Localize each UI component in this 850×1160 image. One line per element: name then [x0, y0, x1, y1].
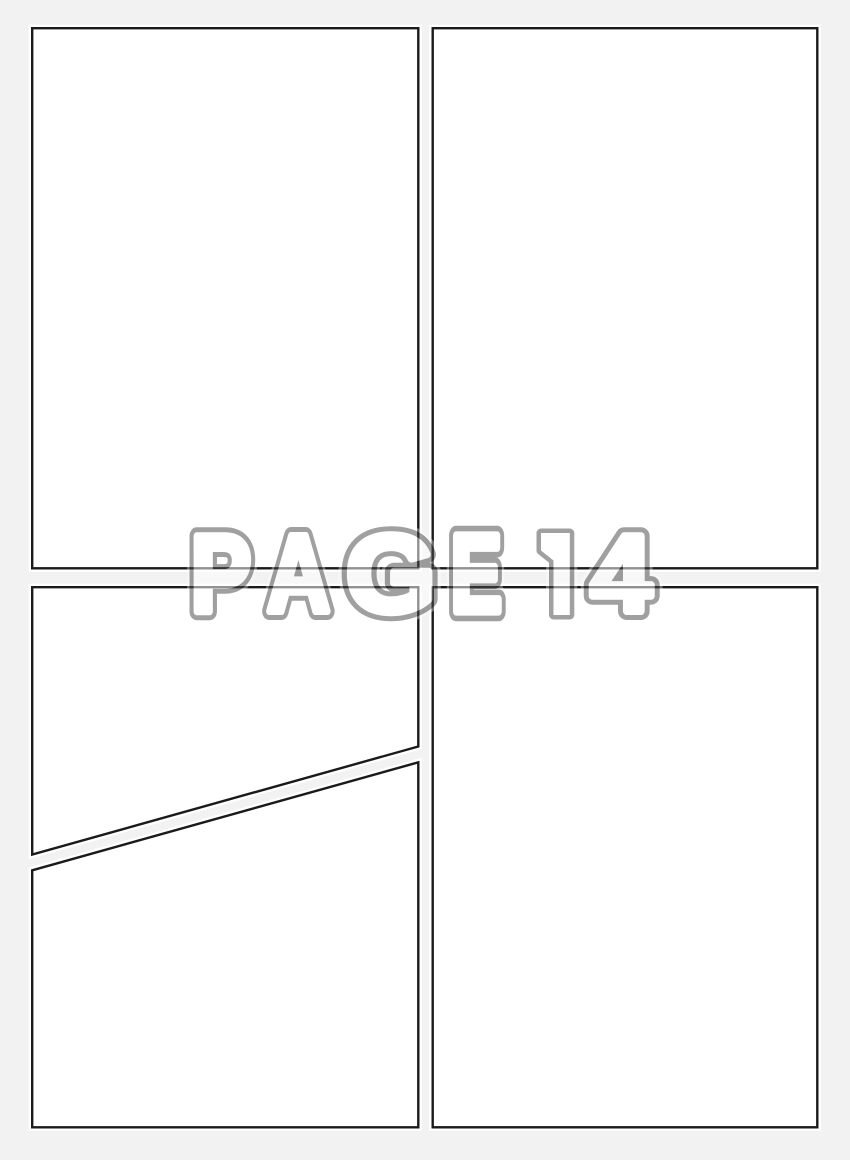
svg-text:A: A [267, 513, 330, 636]
svg-text:4: 4 [591, 513, 652, 635]
svg-text:G: G [346, 512, 436, 635]
svg-text:E: E [451, 513, 502, 636]
svg-text:P: P [191, 513, 252, 635]
